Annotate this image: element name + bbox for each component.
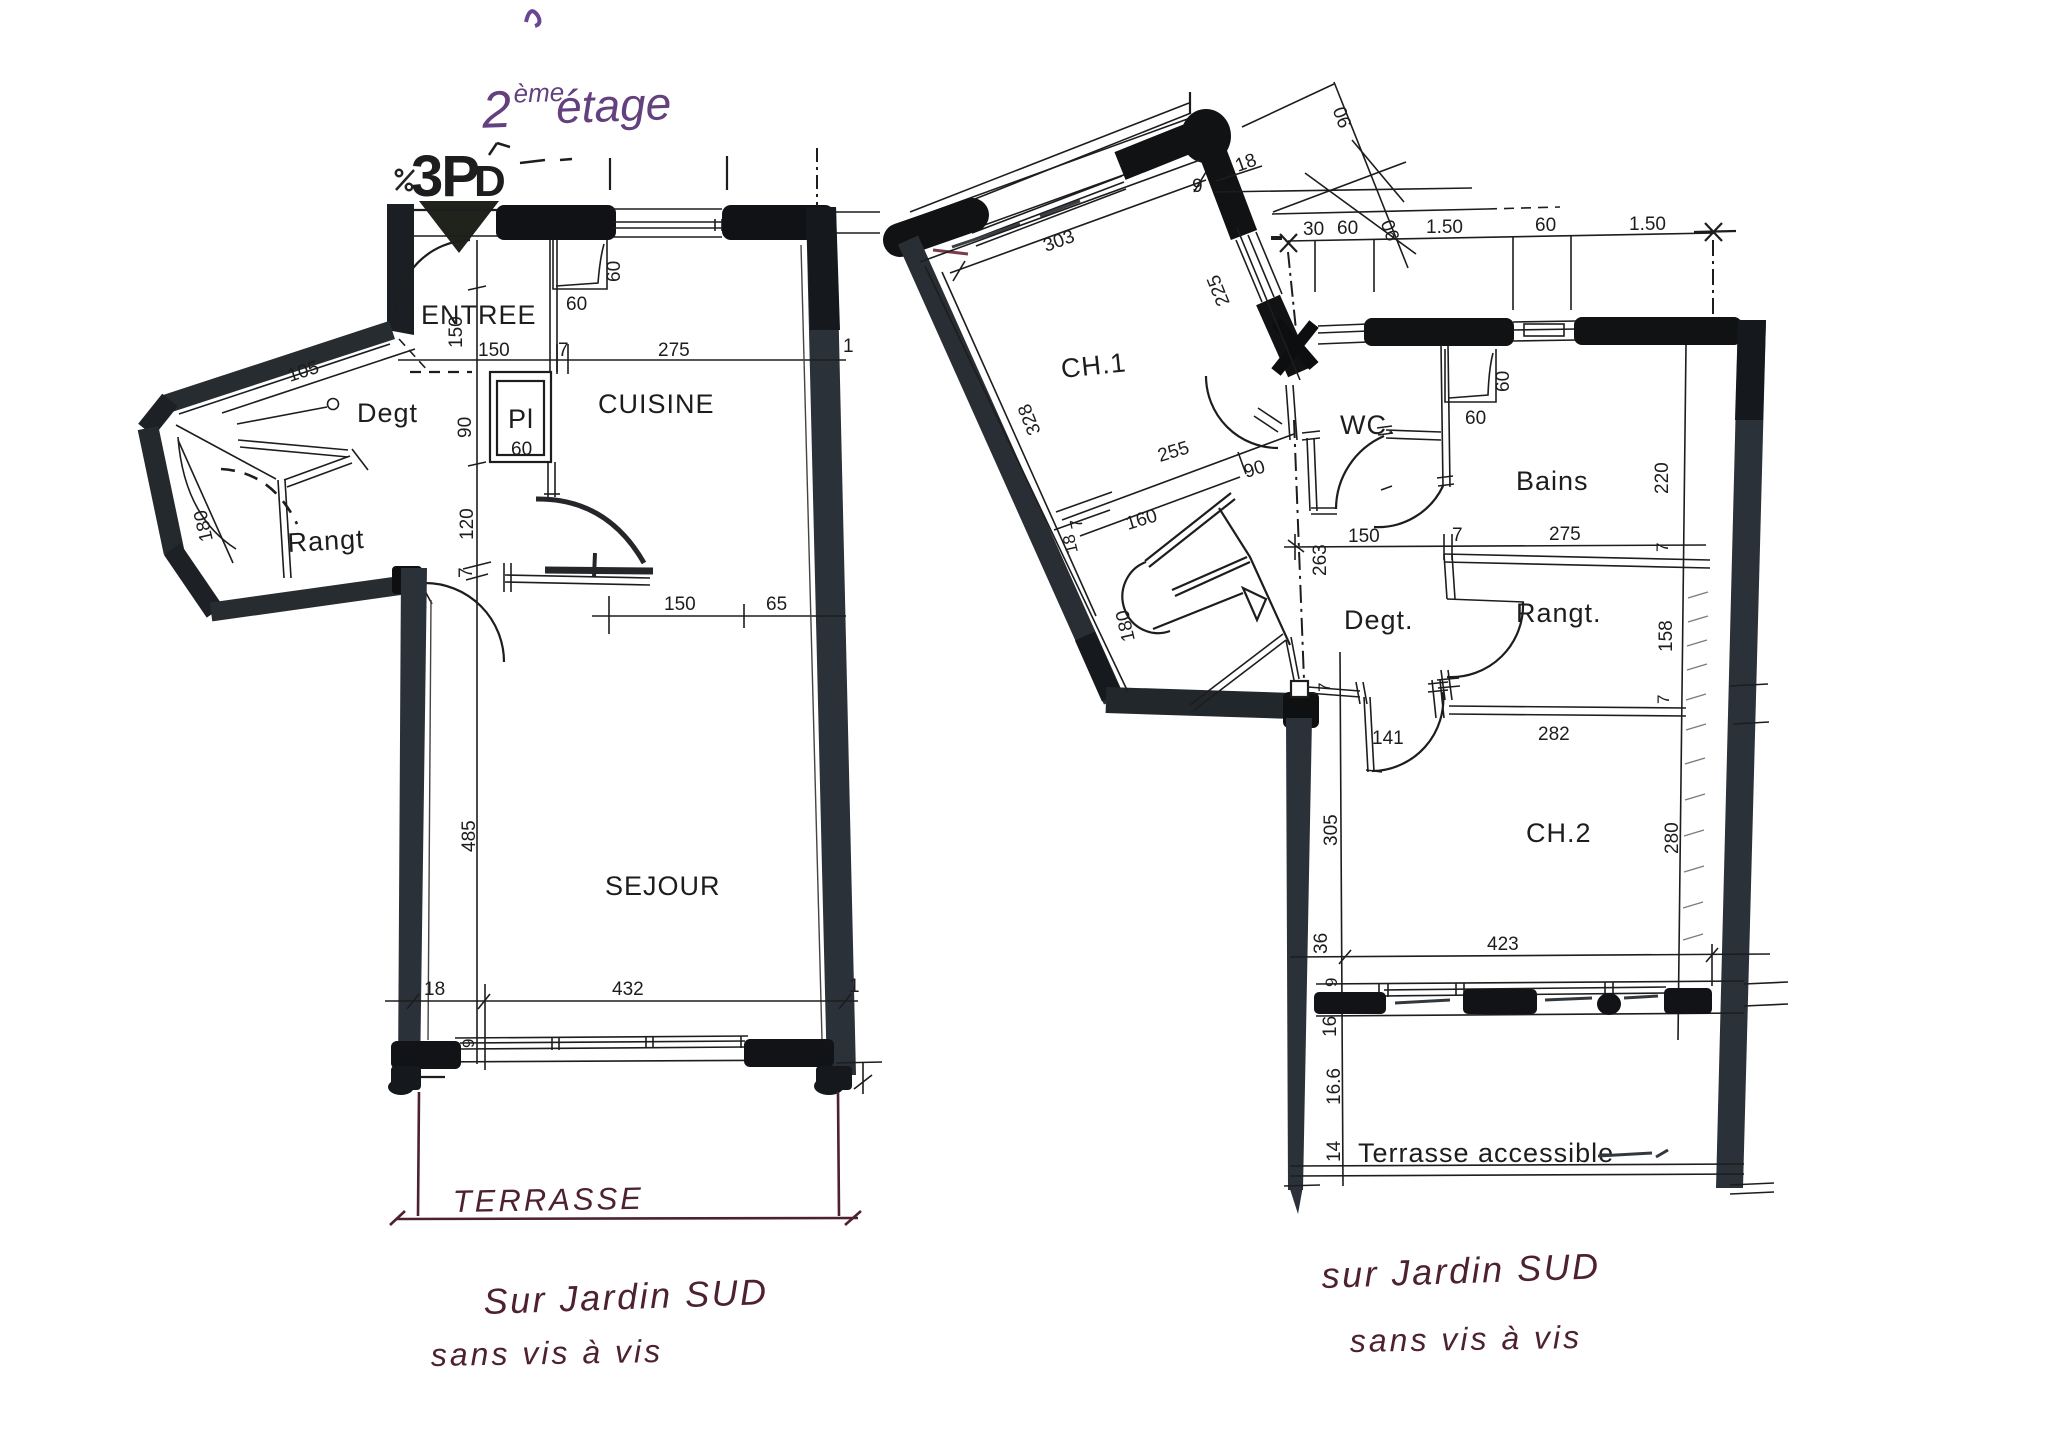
svg-text:120: 120 [457, 508, 478, 540]
svg-text:282: 282 [1538, 724, 1570, 745]
svg-text:Rangt.: Rangt. [1516, 598, 1602, 628]
svg-text:65: 65 [766, 594, 787, 615]
svg-text:36: 36 [1311, 933, 1332, 954]
svg-text:90: 90 [455, 417, 476, 438]
svg-text:CUISINE: CUISINE [598, 389, 715, 419]
svg-text:2: 2 [480, 81, 512, 140]
svg-text:CH.2: CH.2 [1526, 818, 1592, 848]
svg-text:WC.: WC. [1340, 410, 1395, 440]
svg-text:60: 60 [1465, 408, 1486, 429]
svg-text:TERRASSE: TERRASSE [453, 1181, 645, 1219]
svg-text:9: 9 [1192, 176, 1203, 197]
svg-text:1: 1 [843, 336, 854, 357]
svg-text:60: 60 [1493, 371, 1514, 392]
svg-text:3P: 3P [411, 144, 478, 209]
svg-text:Rangt: Rangt [287, 524, 366, 558]
svg-text:60: 60 [1337, 218, 1358, 239]
svg-text:275: 275 [1549, 524, 1581, 545]
svg-text:158: 158 [1656, 620, 1677, 652]
svg-text:150: 150 [478, 340, 510, 361]
svg-text:étage: étage [555, 77, 672, 133]
svg-text:60: 60 [604, 261, 625, 282]
svg-text:263: 263 [1310, 544, 1331, 576]
svg-text:Degt.: Degt. [1344, 605, 1414, 635]
svg-text:16.6: 16.6 [1324, 1068, 1345, 1105]
svg-text:9: 9 [1322, 978, 1341, 987]
svg-text:150: 150 [446, 316, 467, 348]
svg-text:1: 1 [849, 976, 860, 997]
svg-text:ENTREE: ENTREE [421, 300, 537, 330]
svg-text:275: 275 [658, 340, 690, 361]
svg-text:141: 141 [1372, 728, 1404, 749]
svg-text:16: 16 [1320, 1016, 1341, 1037]
svg-text:60: 60 [566, 294, 587, 315]
svg-text:sans vis à vis: sans vis à vis [1349, 1319, 1582, 1359]
svg-text:18: 18 [424, 979, 445, 1000]
svg-text:D: D [474, 157, 506, 206]
svg-text:60: 60 [1535, 215, 1556, 236]
svg-text:SEJOUR: SEJOUR [605, 871, 721, 901]
svg-text:7: 7 [456, 567, 477, 578]
svg-text:7: 7 [1653, 543, 1672, 552]
svg-text:7: 7 [1654, 695, 1673, 704]
svg-text:Bains: Bains [1516, 466, 1589, 496]
svg-text:Pl: Pl [508, 404, 534, 434]
svg-text:30: 30 [1303, 219, 1324, 240]
svg-text:1.50: 1.50 [1426, 217, 1463, 238]
svg-text:Degt: Degt [357, 398, 418, 428]
svg-text:423: 423 [1487, 934, 1519, 955]
svg-text:7: 7 [558, 340, 569, 361]
svg-text:60: 60 [511, 439, 532, 460]
svg-text:Terrasse accessible: Terrasse accessible [1358, 1138, 1614, 1168]
svg-text:220: 220 [1652, 462, 1673, 494]
svg-text:305: 305 [1321, 814, 1342, 846]
svg-text:7: 7 [1315, 683, 1334, 692]
svg-text:150: 150 [1348, 526, 1380, 547]
svg-text:150: 150 [664, 594, 696, 615]
svg-text:sans vis à vis: sans vis à vis [430, 1333, 663, 1373]
svg-text:432: 432 [612, 979, 644, 1000]
svg-text:485: 485 [459, 820, 480, 852]
svg-text:280: 280 [1662, 822, 1683, 854]
svg-text:1.50: 1.50 [1629, 214, 1666, 235]
svg-text:14: 14 [1324, 1140, 1345, 1162]
svg-text:7: 7 [1452, 525, 1463, 546]
